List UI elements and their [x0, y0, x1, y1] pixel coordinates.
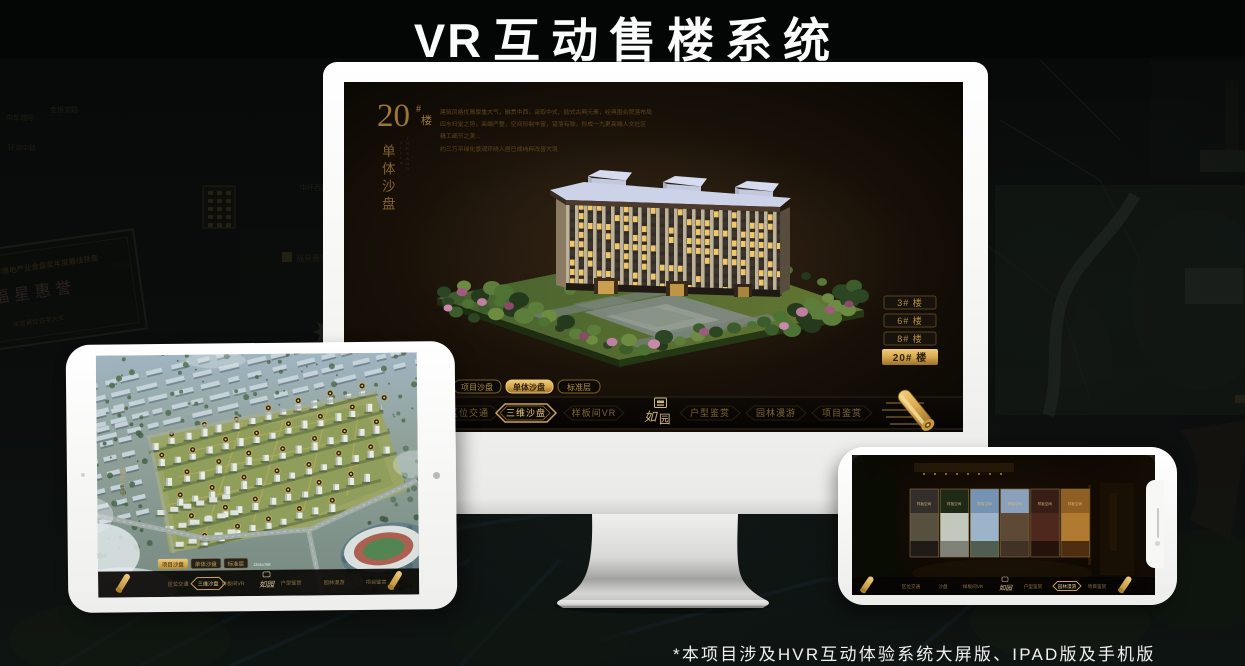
- svg-text:三维沙盘: 三维沙盘: [506, 407, 546, 418]
- svg-text:如: 如: [644, 410, 658, 424]
- svg-text:#: #: [416, 104, 421, 115]
- svg-text:四水归堂之势，高端严整，空间形制丰富，错落有致，形成一九更高: 四水归堂之势，高端严整，空间形制丰富，错落有致，形成一九更高端人文社区: [440, 120, 646, 128]
- svg-text:体: 体: [382, 162, 396, 177]
- svg-text:A: A: [400, 160, 403, 165]
- svg-text:标准层: 标准层: [567, 382, 591, 392]
- svg-text:样板空间: 样板空间: [947, 501, 962, 506]
- svg-text:区位交通: 区位交通: [168, 580, 190, 588]
- svg-text:约三万平绿化景观环绕人居已成纯粹改善大境: 约三万平绿化景观环绕人居已成纯粹改善大境: [440, 145, 558, 153]
- svg-text:1366x768: 1366x768: [253, 562, 271, 567]
- svg-text:样板空间: 样板空间: [977, 501, 992, 506]
- svg-text:单体沙盘: 单体沙盘: [195, 560, 218, 568]
- svg-text:建筑风格优雅厚重大气，融贯中西，汲取中式、欧式古典元素，经典: 建筑风格优雅厚重大气，融贯中西，汲取中式、欧式古典元素，经典围合院落布局: [440, 108, 652, 116]
- svg-text:项目鉴赏: 项目鉴赏: [822, 407, 862, 418]
- svg-text:20# 楼: 20# 楼: [893, 351, 927, 364]
- svg-text:样板间VR: 样板间VR: [963, 583, 984, 590]
- svg-text:环湖中路: 环湖中路: [8, 143, 36, 152]
- svg-text:沙: 沙: [382, 179, 396, 194]
- svg-text:样板空间: 样板空间: [1038, 501, 1053, 506]
- svg-text:盘: 盘: [382, 196, 396, 212]
- svg-text:样板空间: 样板空间: [917, 501, 932, 506]
- svg-text:户型鉴赏: 户型鉴赏: [1024, 583, 1043, 590]
- svg-text:8# 楼: 8# 楼: [897, 333, 923, 344]
- svg-text:园林漫游: 园林漫游: [324, 578, 345, 586]
- svg-text:单: 单: [382, 144, 396, 159]
- svg-text:20: 20: [377, 98, 410, 134]
- svg-text:单体沙盘: 单体沙盘: [513, 382, 545, 392]
- svg-text:楼: 楼: [421, 113, 432, 127]
- svg-text:户型鉴赏: 户型鉴赏: [690, 407, 730, 418]
- svg-text:3# 楼: 3# 楼: [897, 297, 923, 308]
- svg-text:金银湖路: 金银湖路: [50, 105, 78, 114]
- svg-text:如园: 如园: [259, 580, 276, 589]
- svg-text:精工细节之美...: 精工细节之美...: [440, 132, 481, 140]
- svg-text:样板间VR: 样板间VR: [572, 407, 617, 418]
- svg-text:园: 园: [659, 413, 671, 426]
- svg-text:项目沙盘: 项目沙盘: [461, 382, 493, 392]
- svg-text:园林漫游: 园林漫游: [1058, 583, 1077, 590]
- svg-text:沙盘: 沙盘: [938, 583, 948, 589]
- svg-text:6# 楼: 6# 楼: [897, 315, 923, 326]
- svg-text:如园: 如园: [999, 584, 1014, 592]
- svg-text:D: D: [406, 166, 409, 171]
- svg-text:样板空间: 样板空间: [1068, 501, 1083, 506]
- svg-text:户型鉴赏: 户型鉴赏: [281, 579, 302, 587]
- svg-text:项目鉴赏: 项目鉴赏: [366, 578, 387, 586]
- svg-text:中车城际: 中车城际: [6, 113, 34, 122]
- svg-text:区位交通: 区位交通: [902, 583, 921, 590]
- svg-text:园林漫游: 园林漫游: [756, 407, 796, 418]
- svg-text:三维沙盘: 三维沙盘: [198, 579, 219, 587]
- svg-text:项目鉴赏: 项目鉴赏: [1088, 583, 1107, 590]
- svg-text:项目沙盘: 项目沙盘: [162, 560, 185, 568]
- svg-text:样板空间: 样板空间: [1007, 501, 1022, 506]
- svg-text:标准层: 标准层: [228, 560, 245, 568]
